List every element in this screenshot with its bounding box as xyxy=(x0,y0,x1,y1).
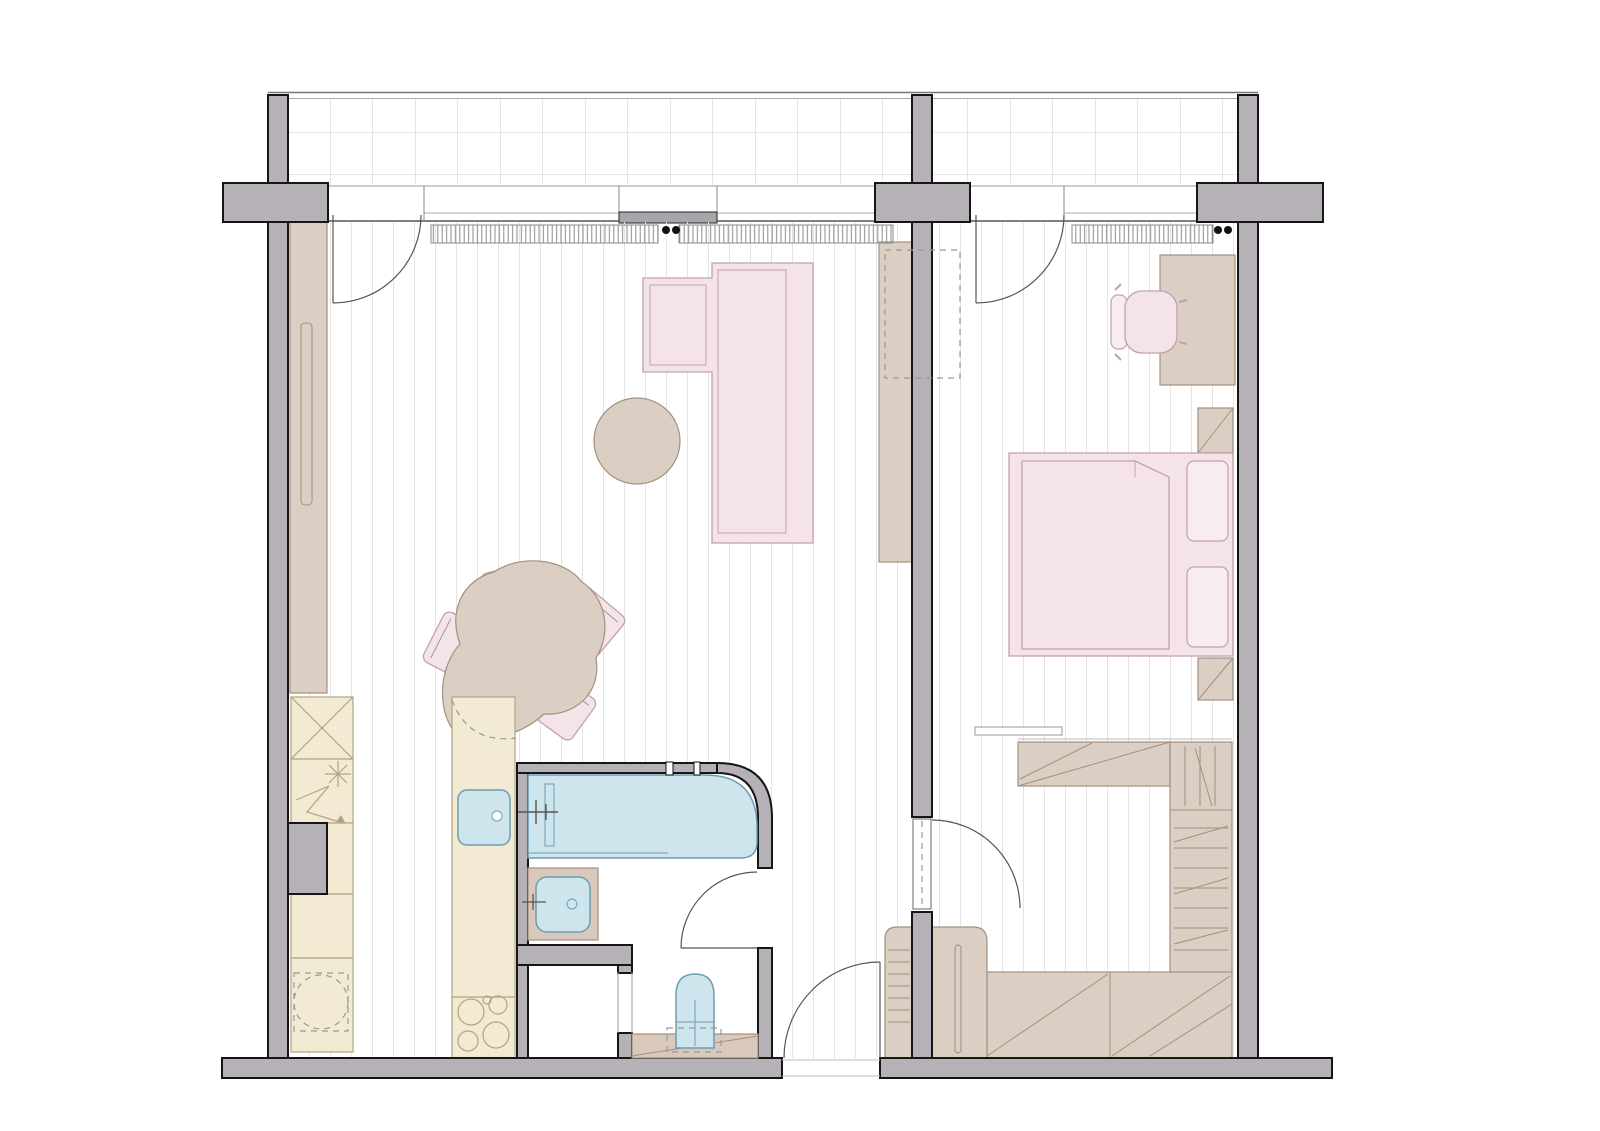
window-handle-dot xyxy=(672,226,680,234)
dividing-wall-lower xyxy=(912,912,932,1058)
desk-chair-seat xyxy=(1125,291,1177,353)
shoe-rack xyxy=(885,927,912,1058)
pillow xyxy=(1187,461,1228,541)
window-handle-dot xyxy=(1224,226,1232,234)
dividing-wall-upper xyxy=(912,222,932,817)
round-pouf xyxy=(594,398,680,484)
bathtub xyxy=(528,775,757,858)
middle-column xyxy=(912,95,932,183)
storage-wall-stub xyxy=(618,965,632,973)
wall-shelf xyxy=(975,727,1062,735)
bathroom-right-wall-lower xyxy=(758,948,772,1058)
radiator xyxy=(1072,225,1213,243)
bathroom-left-wall xyxy=(517,763,528,1058)
bathroom-inner-wall xyxy=(517,945,632,965)
balcony-tiles-left xyxy=(288,99,912,185)
left-pier xyxy=(223,183,328,222)
tv-sideboard xyxy=(879,242,912,562)
right-pier xyxy=(1197,183,1323,222)
wall-niche xyxy=(288,823,327,894)
balcony-tiles-right xyxy=(932,99,1238,185)
sliding-window-panel xyxy=(619,212,717,223)
window-handle-dot xyxy=(662,226,670,234)
wall-notch xyxy=(666,762,673,775)
balcony xyxy=(268,93,1258,186)
storage-wall-stub xyxy=(618,1033,632,1058)
mattress xyxy=(1022,461,1169,649)
pillow xyxy=(1187,567,1228,647)
kitchen-cabinet-narrow xyxy=(327,823,353,894)
tall-wardrobe xyxy=(290,222,327,693)
left-exterior-wall xyxy=(268,95,288,1058)
bathroom-top-wall xyxy=(517,763,717,773)
window-handle-dot xyxy=(1214,226,1222,234)
radiators xyxy=(431,225,1232,243)
bottom-wall-right xyxy=(880,1058,1332,1078)
window-band xyxy=(288,185,1238,223)
vanity-sink xyxy=(536,877,590,932)
radiator xyxy=(679,225,893,243)
floor-plan-page xyxy=(0,0,1600,1131)
sink-tap-hole xyxy=(492,811,502,821)
bedside-cabinet xyxy=(932,927,987,1058)
right-exterior-wall xyxy=(1238,95,1258,1058)
kitchen-cabinet-base xyxy=(291,894,353,958)
window-band-base xyxy=(288,185,1238,222)
radiator xyxy=(431,225,658,243)
middle-pier xyxy=(875,183,970,222)
wall-notch xyxy=(694,762,700,775)
floor-plan-drawing xyxy=(0,0,1600,1131)
washing-machine-cabinet xyxy=(291,958,353,1052)
closet-column xyxy=(1170,742,1232,975)
bottom-wall-left xyxy=(222,1058,782,1078)
